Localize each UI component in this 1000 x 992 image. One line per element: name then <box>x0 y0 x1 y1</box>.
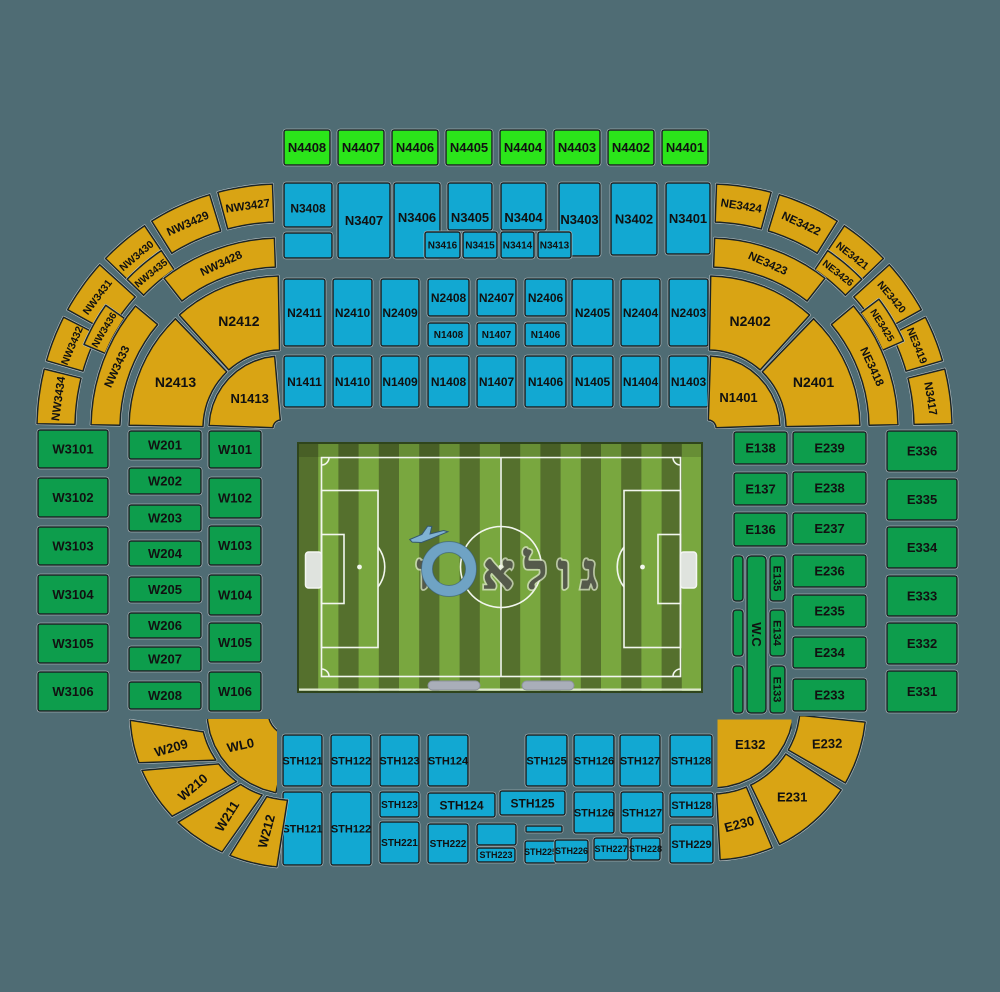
svg-text:N1408: N1408 <box>434 330 464 341</box>
svg-text:N1407: N1407 <box>482 330 512 341</box>
svg-text:STH124: STH124 <box>428 755 469 767</box>
svg-text:STH126: STH126 <box>574 807 614 819</box>
svg-text:W101: W101 <box>218 442 252 457</box>
svg-text:E138: E138 <box>745 441 775 456</box>
svg-text:N3413: N3413 <box>540 241 570 252</box>
svg-text:E134: E134 <box>771 620 783 647</box>
svg-text:STH229: STH229 <box>671 839 711 851</box>
svg-text:N2405: N2405 <box>575 306 611 320</box>
svg-text:W103: W103 <box>218 538 252 553</box>
svg-text:E335: E335 <box>907 492 937 507</box>
svg-text:E331: E331 <box>907 684 937 699</box>
svg-text:STH128: STH128 <box>671 800 711 812</box>
svg-text:N4406: N4406 <box>396 140 434 155</box>
svg-text:E239: E239 <box>814 441 844 456</box>
svg-text:N3403: N3403 <box>560 212 598 227</box>
svg-text:E231: E231 <box>777 789 807 804</box>
svg-text:W3106: W3106 <box>52 684 93 699</box>
svg-text:STH221: STH221 <box>381 838 418 849</box>
svg-text:N2401: N2401 <box>793 374 834 390</box>
svg-text:N3415: N3415 <box>465 241 495 252</box>
svg-text:W203: W203 <box>148 511 182 526</box>
svg-text:W3103: W3103 <box>52 539 93 554</box>
svg-text:E235: E235 <box>814 604 844 619</box>
svg-text:STH222: STH222 <box>430 839 467 850</box>
svg-text:W207: W207 <box>148 652 182 667</box>
svg-text:N3404: N3404 <box>504 210 543 225</box>
svg-text:E333: E333 <box>907 589 937 604</box>
svg-text:N1413: N1413 <box>231 391 269 406</box>
svg-text:N1404: N1404 <box>623 375 659 389</box>
svg-text:N2406: N2406 <box>528 291 564 305</box>
svg-text:W3101: W3101 <box>52 442 93 457</box>
svg-text:N3406: N3406 <box>398 210 436 225</box>
svg-text:N1408: N1408 <box>431 375 467 389</box>
svg-text:N4403: N4403 <box>558 140 596 155</box>
svg-text:E336: E336 <box>907 444 937 459</box>
svg-text:N1410: N1410 <box>335 375 371 389</box>
svg-text:N4401: N4401 <box>666 140 704 155</box>
svg-text:STH124: STH124 <box>439 798 483 812</box>
svg-text:N3408: N3408 <box>290 201 326 215</box>
svg-text:N2411: N2411 <box>287 306 322 320</box>
svg-text:STH228: STH228 <box>629 844 662 854</box>
svg-text:W105: W105 <box>218 635 252 650</box>
svg-text:N1406: N1406 <box>528 375 564 389</box>
svg-text:E236: E236 <box>814 564 844 579</box>
svg-text:E238: E238 <box>814 481 844 496</box>
svg-text:N2412: N2412 <box>218 313 259 329</box>
svg-text:N3405: N3405 <box>451 210 489 225</box>
svg-text:N3401: N3401 <box>669 211 707 226</box>
svg-text:N1406: N1406 <box>531 330 561 341</box>
svg-text:W3104: W3104 <box>52 587 94 602</box>
svg-text:STH223: STH223 <box>479 850 512 860</box>
svg-text:N1407: N1407 <box>479 375 515 389</box>
svg-text:N1409: N1409 <box>382 375 418 389</box>
svg-text:N2413: N2413 <box>155 374 196 390</box>
svg-text:E137: E137 <box>745 482 775 497</box>
svg-text:STH122: STH122 <box>331 823 371 835</box>
svg-text:E135: E135 <box>771 566 783 592</box>
svg-text:STH226: STH226 <box>555 846 588 856</box>
svg-text:N2410: N2410 <box>335 306 371 320</box>
svg-text:W106: W106 <box>218 684 252 699</box>
svg-text:STH121: STH121 <box>282 823 322 835</box>
svg-text:E237: E237 <box>814 521 844 536</box>
svg-text:STH128: STH128 <box>671 755 711 767</box>
svg-text:N4408: N4408 <box>288 140 326 155</box>
svg-text:STH127: STH127 <box>620 755 660 767</box>
svg-text:W201: W201 <box>148 438 182 453</box>
svg-text:E334: E334 <box>907 540 938 555</box>
svg-text:E136: E136 <box>745 522 775 537</box>
svg-text:N3402: N3402 <box>615 212 653 227</box>
svg-text:N2409: N2409 <box>382 306 418 320</box>
svg-text:N2404: N2404 <box>623 306 659 320</box>
svg-text:STH225: STH225 <box>524 847 557 857</box>
svg-text:W3102: W3102 <box>52 490 93 505</box>
svg-text:E233: E233 <box>814 688 844 703</box>
svg-text:N2402: N2402 <box>729 313 770 329</box>
svg-text:N2403: N2403 <box>671 306 707 320</box>
svg-text:גולא: גולא <box>483 546 608 599</box>
svg-text:N3416: N3416 <box>428 241 458 252</box>
svg-text:STH126: STH126 <box>574 755 614 767</box>
svg-text:E232: E232 <box>812 736 843 752</box>
svg-text:N2408: N2408 <box>431 291 467 305</box>
svg-text:W208: W208 <box>148 688 182 703</box>
svg-text:N2407: N2407 <box>479 291 515 305</box>
svg-text:STH123: STH123 <box>379 755 419 767</box>
svg-text:N3414: N3414 <box>503 241 533 252</box>
svg-text:N4405: N4405 <box>450 140 488 155</box>
svg-text:STH227: STH227 <box>594 844 627 854</box>
svg-text:W102: W102 <box>218 491 252 506</box>
svg-text:N3407: N3407 <box>345 213 383 228</box>
svg-text:N1401: N1401 <box>719 390 757 405</box>
svg-text:STH121: STH121 <box>282 755 322 767</box>
svg-text:W206: W206 <box>148 618 182 633</box>
svg-text:STH122: STH122 <box>331 755 371 767</box>
svg-text:N1403: N1403 <box>671 375 707 389</box>
svg-text:E133: E133 <box>771 677 783 703</box>
svg-text:N1411: N1411 <box>287 375 322 389</box>
svg-text:STH123: STH123 <box>381 800 418 811</box>
svg-text:N4404: N4404 <box>504 140 543 155</box>
svg-text:W3105: W3105 <box>52 636 93 651</box>
svg-text:W205: W205 <box>148 582 182 597</box>
svg-text:E234: E234 <box>814 645 845 660</box>
svg-text:STH125: STH125 <box>526 755 566 767</box>
svg-text:E132: E132 <box>735 737 765 752</box>
svg-text:N1405: N1405 <box>575 375 611 389</box>
svg-text:STH127: STH127 <box>622 807 662 819</box>
svg-text:E332: E332 <box>907 636 937 651</box>
svg-text:N4407: N4407 <box>342 140 380 155</box>
svg-text:W104: W104 <box>218 588 253 603</box>
svg-text:N4402: N4402 <box>612 140 650 155</box>
svg-text:W204: W204 <box>148 546 183 561</box>
svg-text:STH125: STH125 <box>510 796 554 810</box>
svg-text:W202: W202 <box>148 474 182 489</box>
svg-text:W.C: W.C <box>749 622 764 647</box>
